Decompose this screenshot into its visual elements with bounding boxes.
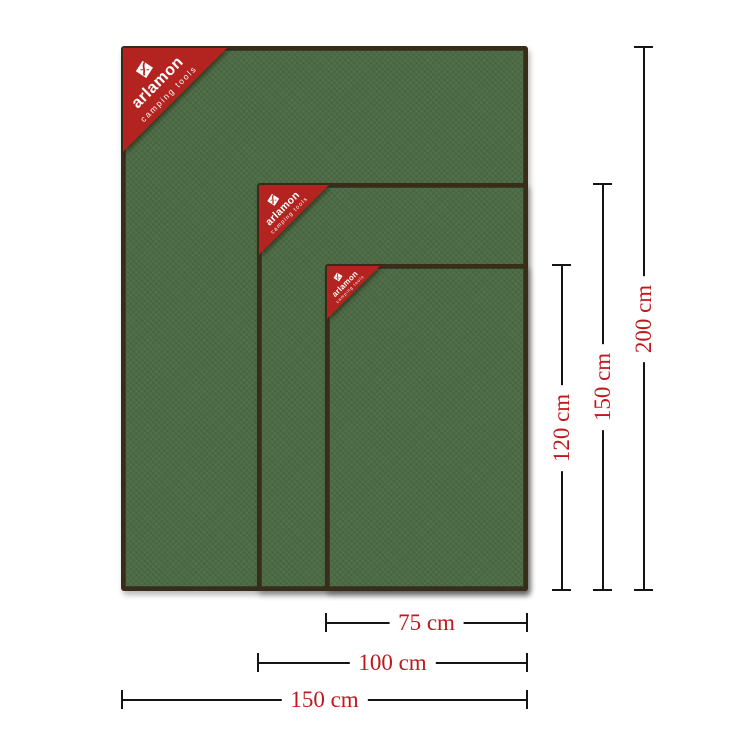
dim-label-75cm: 75 cm [389,610,464,636]
dim-label-200cm: 200 cm [631,275,657,361]
dim-height-200: 200 cm [634,46,653,591]
brand-badge-triangle: arlamon camping tools [327,266,380,319]
blanket-75x120: arlamon camping tools [325,264,528,591]
brand-badge-triangle: arlamon camping tools [123,48,227,152]
dim-cap [593,589,612,591]
brand-badge-triangle: arlamon camping tools [259,185,329,255]
dim-label-150cm-vertical: 150 cm [590,344,616,430]
dim-width-100: 100 cm [257,653,528,672]
dim-label-100cm: 100 cm [349,650,435,676]
dim-cap [526,653,528,672]
dim-height-150: 150 cm [593,183,612,591]
dim-cap [526,690,528,709]
brand-badge: arlamon camping tools [123,48,227,152]
dim-cap [552,589,571,591]
dim-label-150cm-horizontal: 150 cm [281,687,367,713]
brand-badge-content: arlamon camping tools [245,171,344,270]
brand-badge: arlamon camping tools [259,185,329,255]
brand-badge-content: arlamon camping tools [316,255,391,330]
brand-badge: arlamon camping tools [327,266,380,319]
product-size-comparison: arlamon camping tools arlamon camping to… [0,0,750,750]
dim-height-120: 120 cm [552,264,571,591]
dim-label-120cm: 120 cm [549,384,575,470]
dim-cap [634,589,653,591]
brand-badge-content: arlamon camping tools [101,26,248,173]
dim-cap [526,613,528,632]
dim-width-150: 150 cm [121,690,528,709]
dim-width-75: 75 cm [325,613,528,632]
